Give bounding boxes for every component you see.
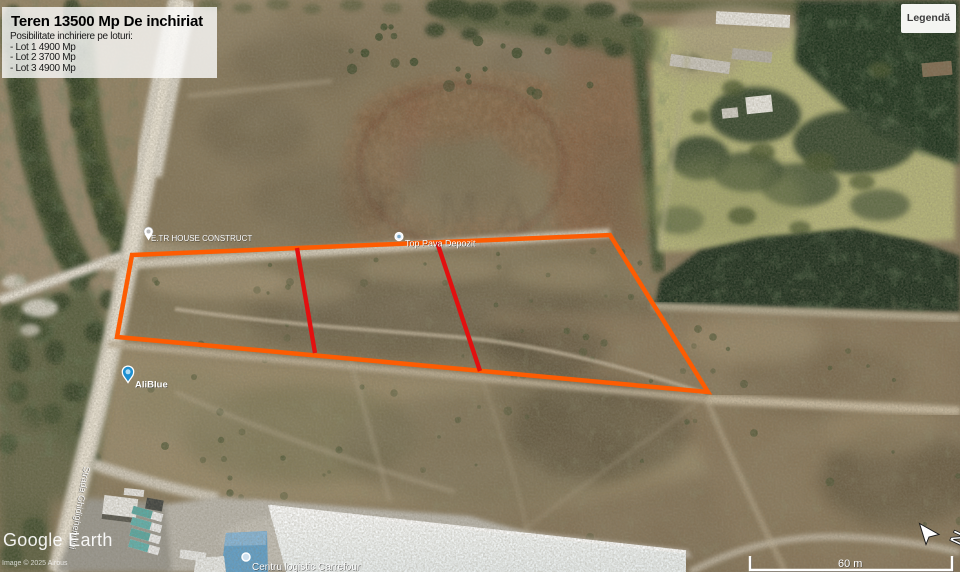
svg-text:Centru logistic Carrefour: Centru logistic Carrefour xyxy=(252,562,361,572)
svg-text:Top Pava Depozit: Top Pava Depozit xyxy=(405,239,476,249)
svg-text:AliBlue: AliBlue xyxy=(135,380,168,391)
svg-text:60 m: 60 m xyxy=(838,558,862,570)
svg-text:E.TR HOUSE CONSTRUCT: E.TR HOUSE CONSTRUCT xyxy=(151,234,252,243)
